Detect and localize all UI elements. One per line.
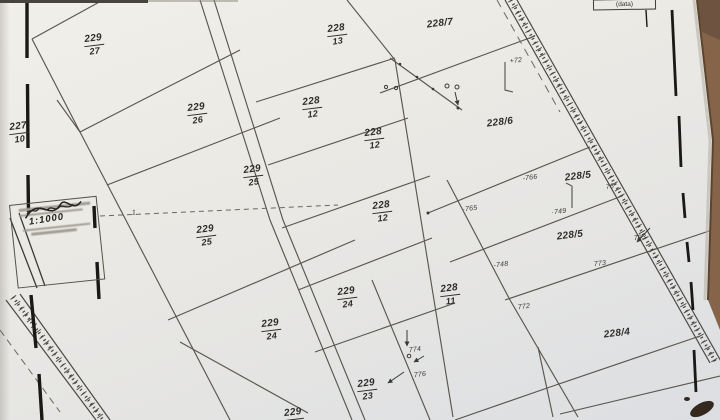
cadastral-map-photo: 1:1000 (data) 22927227102292622925229252… [0, 0, 720, 420]
parcel-label: 22927 [83, 33, 105, 57]
road-hatching [0, 0, 720, 420]
measurement-label: +72 [509, 57, 522, 65]
parcel-label: 22925 [195, 224, 217, 248]
parcel-boundaries-drawing [0, 0, 720, 420]
measurement-label: 1 [132, 209, 137, 216]
date-box: (data) [593, 0, 656, 11]
parcel-label: 22812 [371, 200, 393, 224]
measurement-label: 773 [593, 260, 606, 268]
measurement-label: 772 [517, 303, 530, 311]
date-box-label: (data) [616, 1, 633, 8]
table-surface [694, 0, 720, 330]
measurement-label: 76 [606, 183, 615, 191]
measurement-label: 774 [408, 346, 421, 354]
paper-edge-shadow [0, 0, 148, 3]
parcel-label: 229 [283, 407, 304, 420]
parcel-label: 22811 [439, 283, 461, 307]
parcel-label: 22925 [242, 164, 264, 188]
measurement-label: 723 [633, 234, 646, 242]
measurement-label: 776 [413, 371, 426, 379]
parcel-label: 22923 [356, 378, 378, 402]
surveyor-stamp: 1:1000 [9, 196, 105, 289]
map-border-dashes [27, 0, 696, 420]
parcel-label: 22812 [363, 127, 385, 151]
ink-smudge [684, 397, 716, 420]
parcel-label: 22926 [186, 102, 208, 126]
parcel-label: 22812 [301, 96, 323, 120]
parcel-label: 22924 [260, 318, 282, 342]
parcel-label: 22710 [8, 121, 30, 145]
parcel-label: 22924 [336, 286, 358, 310]
paper-edge-shadow-fade [148, 0, 238, 2]
parcel-label: 22813 [326, 23, 348, 47]
